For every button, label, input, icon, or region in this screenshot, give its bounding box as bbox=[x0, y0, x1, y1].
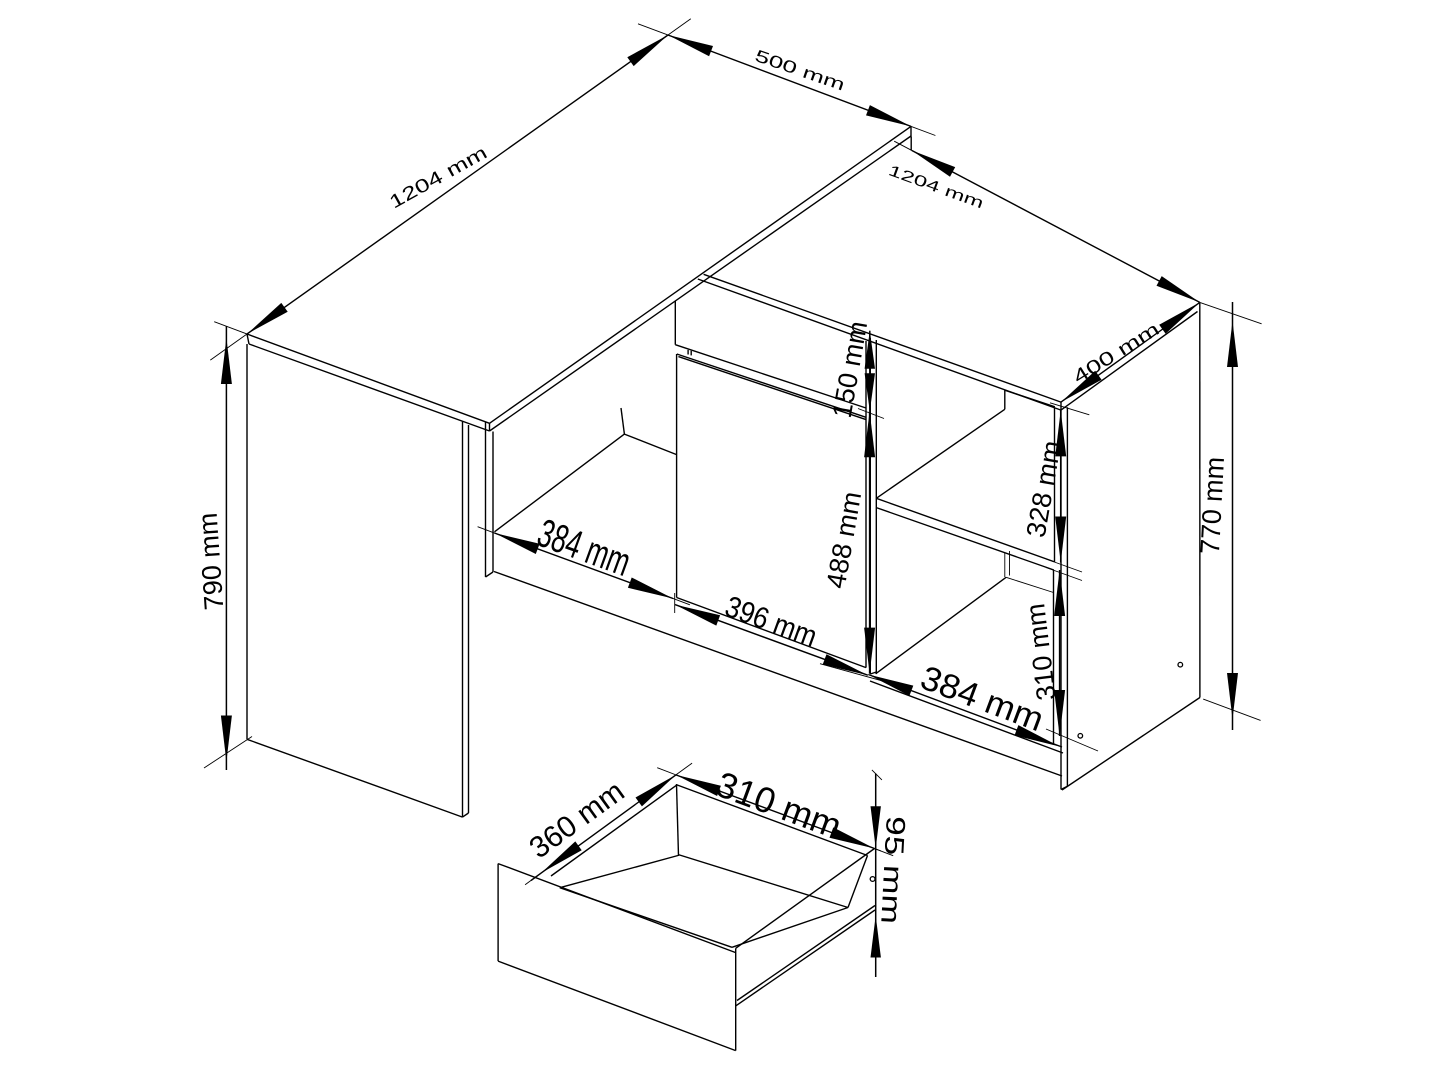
svg-text:770 mm: 770 mm bbox=[1195, 456, 1230, 555]
svg-text:95 mm: 95 mm bbox=[875, 815, 911, 924]
